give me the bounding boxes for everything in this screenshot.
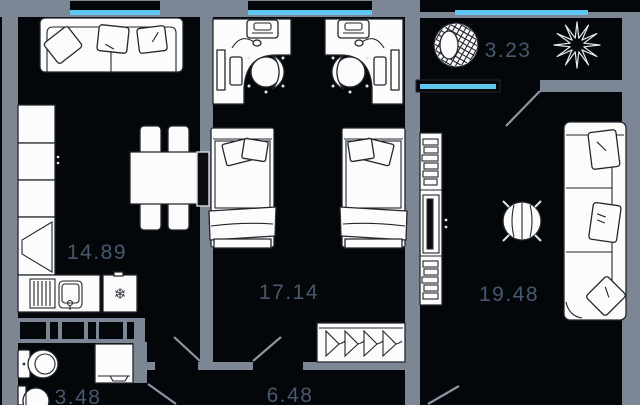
wardrobe: [317, 323, 405, 362]
toilet: [18, 350, 58, 378]
sofa-pillow: [588, 129, 620, 169]
area-label-bathroom: 3.48: [55, 387, 102, 405]
workstation-desk-mirrored: [325, 19, 403, 104]
window-kitchen: [70, 1, 160, 15]
balcony-door-swing: [506, 91, 540, 126]
washing-machine: [95, 344, 133, 383]
dining-set: [130, 126, 200, 230]
area-label-kitchen-living: 14.89: [67, 242, 127, 263]
window-living-room: [416, 80, 500, 92]
floor-plan-drawing: [0, 0, 640, 405]
dining-table: [130, 152, 200, 204]
sofa-pillow: [137, 25, 168, 53]
floor-plan: 14.89 17.14 19.48 3.23 3.48 6.48 ❄: [0, 0, 640, 405]
sofa-pillow: [97, 25, 130, 54]
monitor-icon: [217, 50, 225, 90]
kids-room-door-swing: [253, 337, 281, 361]
bed-pillow: [242, 138, 269, 162]
washbasin: [18, 386, 49, 405]
sofa-pillow: [588, 202, 621, 243]
kitchen-counter: [18, 105, 100, 312]
area-label-balcony: 3.23: [485, 40, 532, 61]
single-bed-mirrored: [340, 128, 407, 248]
sofa: [40, 18, 183, 72]
single-bed: [209, 128, 276, 248]
workstation-desk: [213, 19, 291, 104]
fridge-snowflake-icon: ❄: [103, 275, 137, 312]
area-label-living-room: 19.48: [479, 284, 539, 305]
printer-icon: [247, 20, 278, 38]
round-chair: [503, 201, 541, 241]
kitchen-door-swing: [174, 337, 200, 361]
round-wicker-chair: [423, 11, 490, 78]
living-room-door-swing: [428, 386, 459, 404]
wall-mounted-tv: [197, 152, 209, 206]
keyboard-icon: [230, 57, 242, 85]
bathroom-door-swing: [148, 384, 176, 404]
area-label-hallway: 6.48: [267, 385, 314, 405]
corner-sofa: [564, 122, 627, 320]
balcony-glazing: [455, 1, 588, 15]
window-kids-room: [248, 1, 372, 15]
plant-icon: [554, 22, 600, 68]
tv-shelf-unit: [420, 133, 447, 305]
area-label-kids-bedroom: 17.14: [259, 282, 319, 303]
ventilation-duct: [14, 318, 145, 343]
